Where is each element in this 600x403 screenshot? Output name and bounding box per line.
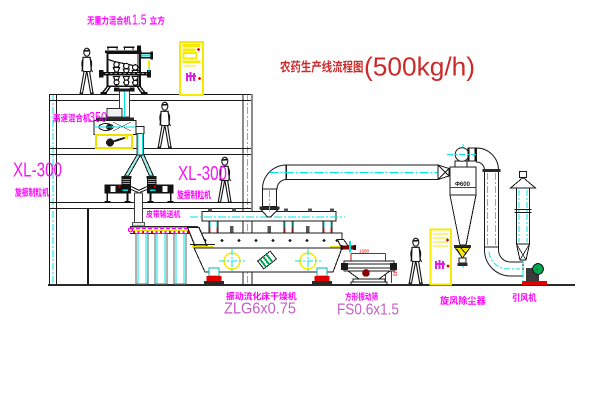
svg-text:350: 350 — [89, 110, 107, 126]
svg-text:XL-300: XL-300 — [13, 160, 62, 182]
svg-text:1.5: 1.5 — [132, 12, 147, 29]
svg-text:(500kg/h): (500kg/h) — [364, 52, 475, 82]
svg-text:FS0.6x1.5: FS0.6x1.5 — [337, 302, 399, 319]
svg-text:ZLG6x0.75: ZLG6x0.75 — [224, 301, 296, 318]
svg-text:1500: 1500 — [359, 249, 370, 254]
svg-text:Φ600: Φ600 — [455, 182, 471, 188]
svg-text:XL-300: XL-300 — [178, 163, 227, 185]
